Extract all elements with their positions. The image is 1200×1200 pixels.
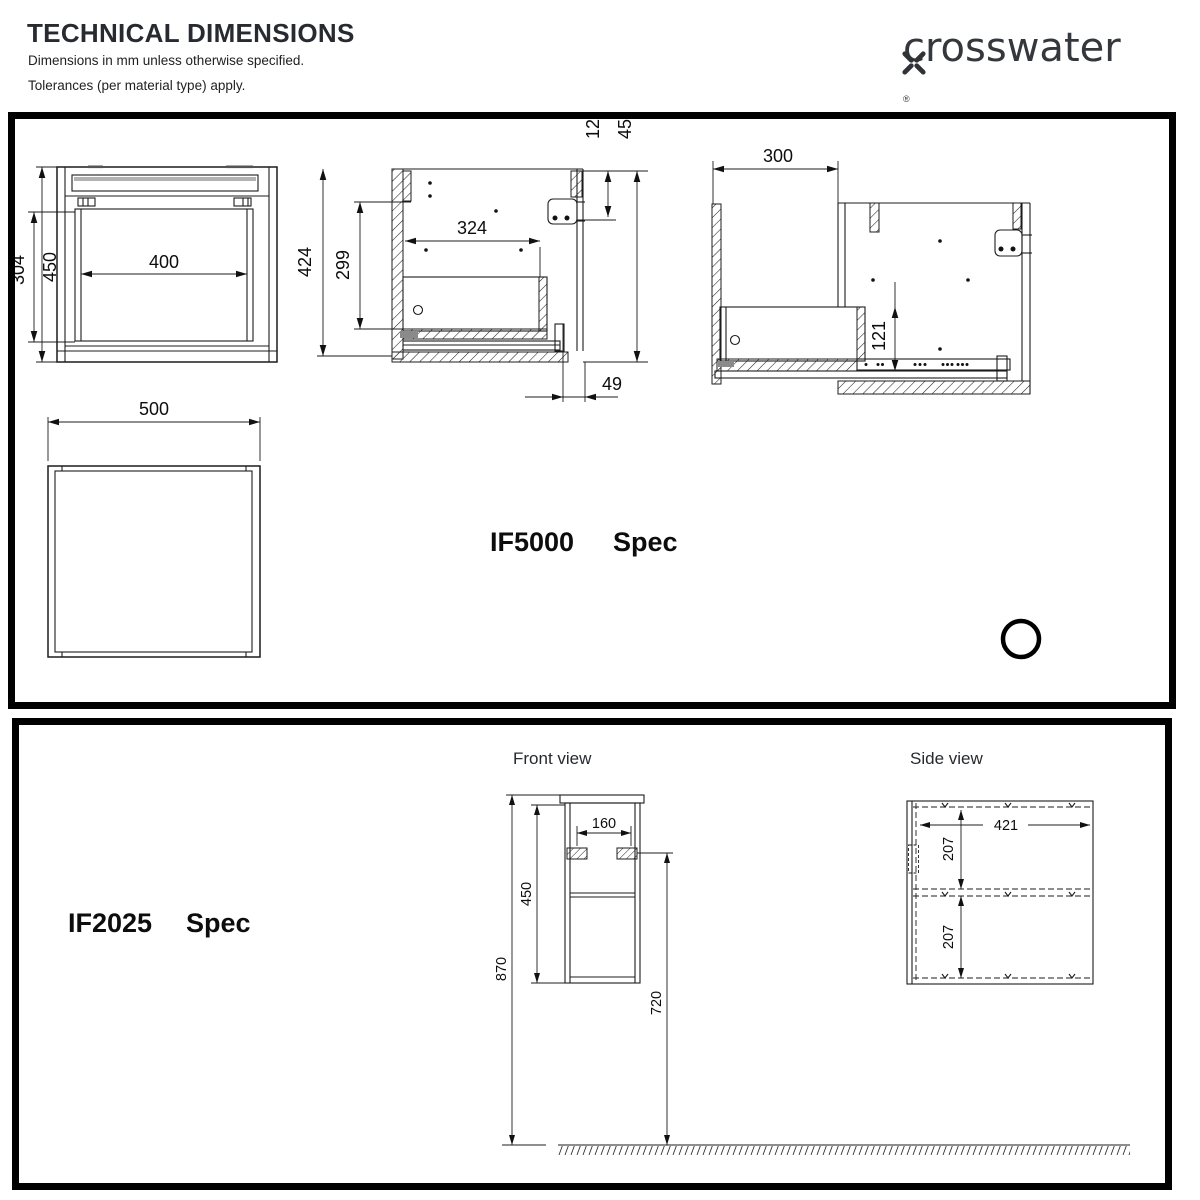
front-view-title: Front view [513,749,592,768]
if5000-spec-label: Spec [613,527,678,557]
if2025-model-label: IF2025 [68,908,152,938]
colour-swatch-circle [1003,621,1039,657]
dim-720-label: 720 [649,991,665,1015]
subtitle-units: Dimensions in mm unless otherwise specif… [28,53,304,68]
spec-sheet-page: { "header": { "title": "TECHNICAL DIMENS… [0,0,1200,1200]
dim-450b-label: 450 [615,119,635,139]
if2025-side-view-drawing: 421 207 207 [907,801,1093,984]
subtitle-tolerances: Tolerances (per material type) apply. [28,78,245,93]
dim-207-upper-label: 207 [941,837,957,861]
drawer-slide-holes [865,363,969,366]
if5000-section-view-drawing: 324 299 424 120 450 49 [295,119,648,402]
registered-mark: ® [903,94,910,104]
dim-160-label: 160 [592,816,616,832]
dim-421-label: 421 [994,818,1018,834]
if2025-spec-label: Spec [186,908,251,938]
dim-400-label: 400 [149,252,179,272]
dim-299-label: 299 [333,250,353,280]
dim-121-label: 121 [869,321,889,351]
dim-120-label: 120 [583,119,603,139]
ground-hatching [558,1146,1130,1155]
dim-304-label: 304 [15,255,28,285]
dim-207-lower-label: 207 [941,925,957,949]
brand-x-icon [901,50,927,76]
dim-300-label: 300 [763,146,793,166]
if5000-spec-panel: 400 304 450 324 299 424 [8,112,1176,709]
if2025-front-view-drawing: 160 450 870 720 [494,795,1130,1155]
if5000-extended-view-drawing: 300 121 [712,146,1032,394]
dim-450-label: 450 [40,252,60,282]
dim-324-label: 324 [457,218,487,238]
if5000-plan-view-drawing: 500 [48,399,260,657]
page-title: TECHNICAL DIMENSIONS [27,18,355,49]
dim-450-label: 450 [519,882,535,906]
if5000-drawings: 400 304 450 324 299 424 [15,119,1169,702]
if2025-spec-panel: Front view Side view IF2025 Spec 160 450… [12,718,1172,1190]
if5000-model-label: IF5000 [490,527,574,557]
dim-424-label: 424 [295,247,315,277]
dim-49-label: 49 [602,374,622,394]
side-view-title: Side view [910,749,983,768]
if5000-front-view-drawing: 400 304 450 [15,166,277,363]
if2025-drawings: Front view Side view IF2025 Spec 160 450… [19,725,1165,1183]
brand-wordmark: crosswater [903,25,1121,71]
dim-500-label: 500 [139,399,169,419]
dim-870-label: 870 [494,957,510,981]
